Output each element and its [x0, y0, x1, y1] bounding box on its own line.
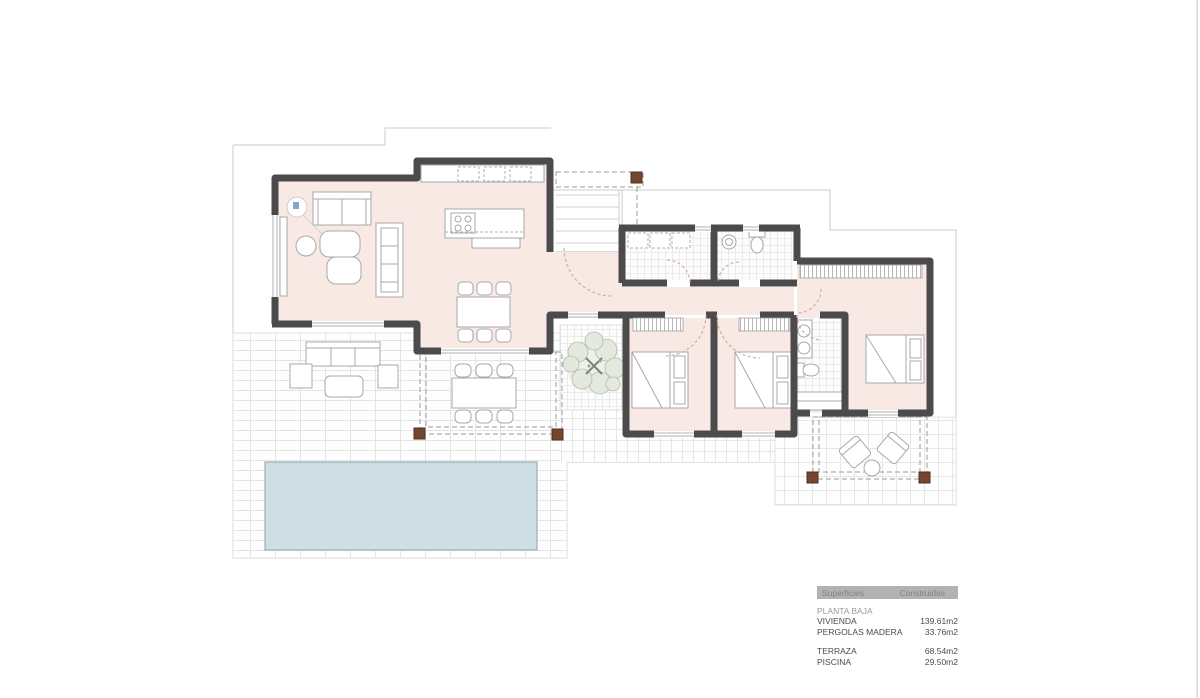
- terrace-right: [775, 417, 956, 505]
- legend-row-label: VIVIENDA: [817, 616, 857, 627]
- pergola-post: [631, 172, 642, 183]
- kitchen-counter: [421, 165, 544, 182]
- legend-header-col2: Construidas: [900, 588, 945, 598]
- entry-steps: [556, 190, 619, 252]
- legend-row: PERGOLAS MADERA 33.76m2: [817, 627, 958, 638]
- pergola-entry: [556, 172, 643, 228]
- legend-section-title: PLANTA BAJA: [817, 607, 958, 616]
- outdoor-dining: [452, 364, 516, 423]
- pool: [265, 462, 537, 550]
- laundry-appliances: [628, 233, 690, 248]
- page-edge: [1197, 0, 1198, 698]
- dining-table-indoor: [457, 282, 511, 342]
- sideboard: [376, 223, 403, 297]
- legend-header-col1: Superficies: [822, 588, 864, 598]
- legend-row: VIVIENDA 139.61m2: [817, 616, 958, 627]
- legend-row-value: 33.76m2: [925, 627, 958, 638]
- legend-row-label: PISCINA: [817, 657, 851, 668]
- legend-row-value: 68.54m2: [925, 646, 958, 657]
- window-sill: [280, 217, 287, 296]
- legend-row-label: TERRAZA: [817, 646, 857, 657]
- bed-bedroom2: [735, 352, 791, 408]
- pergola-post: [807, 472, 818, 483]
- pergola-post: [552, 429, 563, 440]
- pergola-post: [919, 472, 930, 483]
- bed-bedroom1: [632, 352, 688, 408]
- legend-group-construidas: VIVIENDA 139.61m2 PERGOLAS MADERA 33.76m…: [817, 616, 958, 637]
- bed-master: [866, 335, 924, 383]
- legend-row-value: 139.61m2: [920, 616, 958, 627]
- floor-plan: [0, 0, 1200, 698]
- legend-header: Superficies Construidas: [817, 586, 958, 599]
- sofa: [313, 192, 371, 225]
- legend-row-label: PERGOLAS MADERA: [817, 627, 903, 638]
- legend-table: Superficies Construidas PLANTA BAJA VIVI…: [817, 586, 958, 667]
- legend-row-value: 29.50m2: [925, 657, 958, 668]
- legend-row: TERRAZA 68.54m2: [817, 646, 958, 657]
- hallway-floor: [553, 287, 794, 315]
- legend-group-exterior: TERRAZA 68.54m2 PISCINA 29.50m2: [817, 646, 958, 667]
- pergola-post: [414, 428, 425, 439]
- legend-row: PISCINA 29.50m2: [817, 657, 958, 668]
